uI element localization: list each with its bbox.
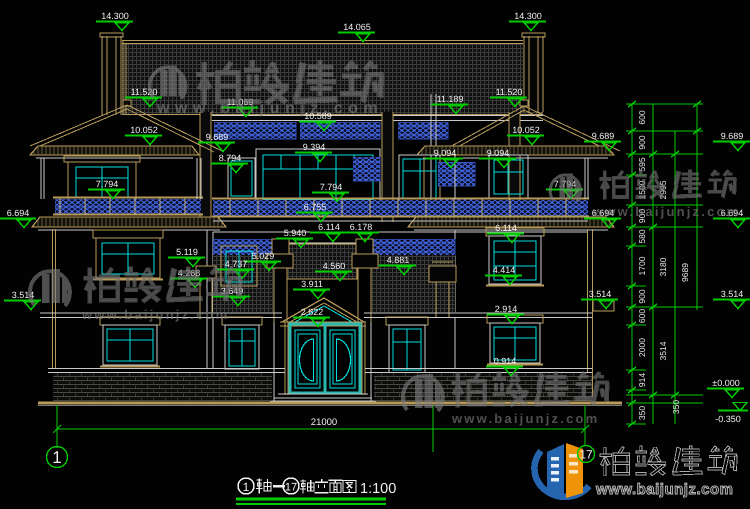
svg-text:14.065: 14.065 bbox=[343, 22, 371, 32]
svg-text:600: 600 bbox=[637, 110, 647, 124]
svg-text:6.114: 6.114 bbox=[318, 222, 340, 232]
svg-text:11.520: 11.520 bbox=[496, 87, 523, 97]
svg-text:www.baijunjz.com: www.baijunjz.com bbox=[81, 307, 229, 322]
svg-text:6.694: 6.694 bbox=[7, 208, 30, 218]
svg-text:7.794: 7.794 bbox=[96, 179, 119, 189]
svg-text:914: 914 bbox=[637, 373, 647, 387]
svg-text:21000: 21000 bbox=[311, 417, 337, 428]
svg-text:9.094: 9.094 bbox=[434, 148, 457, 158]
svg-text:10.052: 10.052 bbox=[130, 125, 158, 135]
svg-text:17: 17 bbox=[285, 482, 297, 494]
svg-text:±0.000: ±0.000 bbox=[712, 378, 739, 388]
svg-text:www.baijunjz.com: www.baijunjz.com bbox=[451, 411, 599, 426]
svg-text:9.394: 9.394 bbox=[303, 142, 326, 152]
svg-text:8.794: 8.794 bbox=[219, 153, 242, 163]
svg-text:5.119: 5.119 bbox=[176, 247, 198, 257]
svg-text:6.755: 6.755 bbox=[304, 202, 327, 212]
svg-text:900: 900 bbox=[637, 135, 647, 149]
svg-text:4.414: 4.414 bbox=[493, 265, 516, 275]
svg-text:580: 580 bbox=[637, 229, 647, 243]
svg-text:900: 900 bbox=[637, 289, 647, 303]
svg-text:9.689: 9.689 bbox=[721, 131, 744, 141]
svg-text:4.737: 4.737 bbox=[225, 259, 248, 269]
svg-text:-0.350: -0.350 bbox=[715, 414, 741, 424]
svg-text:9.094: 9.094 bbox=[487, 148, 510, 158]
svg-text:9.689: 9.689 bbox=[592, 131, 615, 141]
svg-text:600: 600 bbox=[637, 309, 647, 323]
svg-text:1: 1 bbox=[52, 448, 61, 467]
svg-text:9689: 9689 bbox=[680, 263, 690, 282]
svg-text:3.514: 3.514 bbox=[721, 289, 744, 299]
svg-text:7.794: 7.794 bbox=[320, 182, 343, 192]
svg-text:3514: 3514 bbox=[658, 341, 668, 360]
svg-text:4.560: 4.560 bbox=[323, 261, 346, 271]
svg-text:14.300: 14.300 bbox=[101, 11, 129, 21]
svg-text:1700: 1700 bbox=[637, 256, 647, 275]
svg-text:9.689: 9.689 bbox=[206, 132, 229, 142]
svg-text:11.189: 11.189 bbox=[437, 94, 464, 104]
svg-text:3180: 3180 bbox=[658, 257, 668, 276]
svg-text:2000: 2000 bbox=[637, 338, 647, 357]
svg-text:2.822: 2.822 bbox=[301, 307, 324, 317]
svg-text:3.514: 3.514 bbox=[589, 289, 612, 299]
svg-text:14.300: 14.300 bbox=[514, 11, 542, 21]
svg-text:6.178: 6.178 bbox=[350, 222, 373, 232]
svg-text:2.914: 2.914 bbox=[495, 304, 518, 314]
svg-text:3.911: 3.911 bbox=[301, 279, 323, 289]
svg-text:5.940: 5.940 bbox=[284, 228, 307, 238]
svg-text:350: 350 bbox=[671, 400, 681, 414]
svg-text:5.029: 5.029 bbox=[252, 251, 275, 261]
svg-text:4.881: 4.881 bbox=[387, 255, 410, 265]
svg-text:www.baijunjz.com: www.baijunjz.com bbox=[156, 100, 383, 117]
svg-text:1: 1 bbox=[243, 480, 250, 494]
svg-text:0.914: 0.914 bbox=[494, 356, 517, 366]
svg-text:www.baijunjz.com: www.baijunjz.com bbox=[595, 481, 733, 498]
svg-text:17: 17 bbox=[579, 448, 593, 462]
svg-text:350: 350 bbox=[637, 406, 647, 420]
svg-text:www.baijunjz.com: www.baijunjz.com bbox=[592, 204, 740, 219]
svg-text:6.114: 6.114 bbox=[495, 223, 517, 233]
svg-text:10.052: 10.052 bbox=[512, 125, 540, 135]
svg-text:1:100: 1:100 bbox=[360, 481, 396, 497]
